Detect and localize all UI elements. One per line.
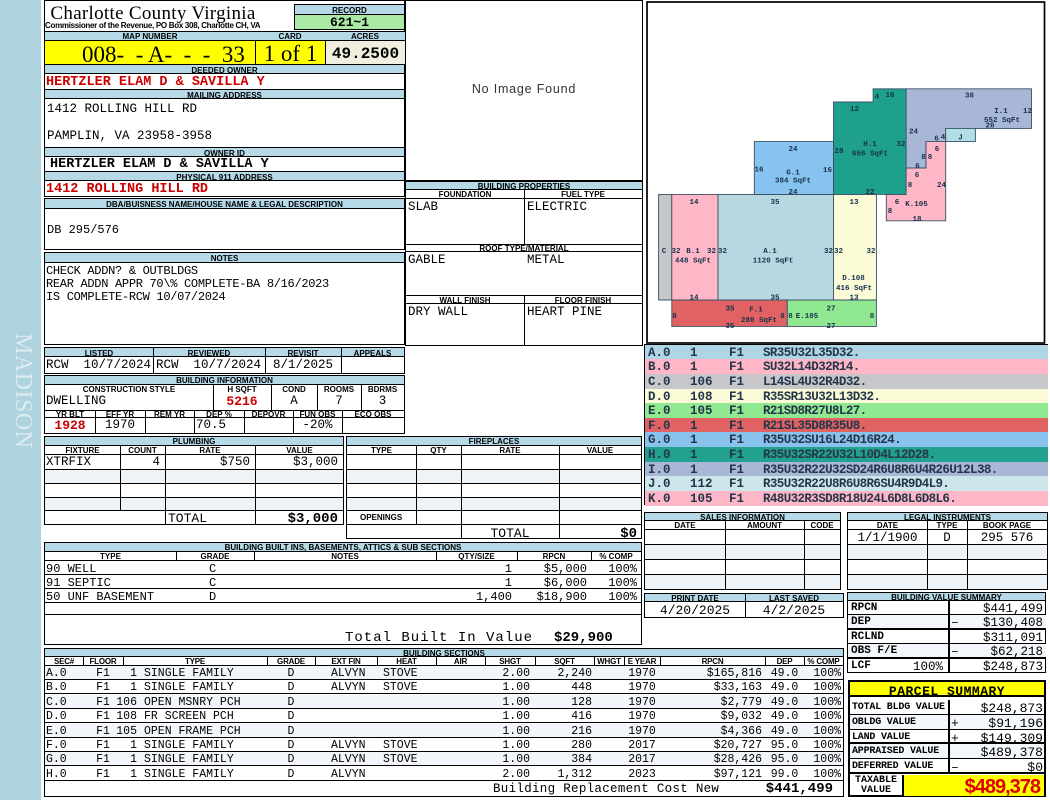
- svg-text:13: 13: [849, 295, 859, 303]
- svg-text:8: 8: [908, 182, 913, 190]
- svg-text:6: 6: [935, 146, 940, 154]
- svg-text:416 SqFt: 416 SqFt: [836, 285, 872, 293]
- svg-text:32: 32: [866, 248, 876, 256]
- svg-text:24: 24: [909, 129, 919, 137]
- svg-text:16: 16: [823, 167, 833, 175]
- svg-text:18: 18: [912, 216, 922, 224]
- svg-text:12: 12: [1023, 108, 1033, 116]
- svg-text:F.1: F.1: [749, 307, 763, 315]
- svg-text:35: 35: [770, 295, 780, 303]
- svg-text:35: 35: [770, 199, 780, 207]
- svg-text:6: 6: [934, 136, 939, 144]
- svg-text:H.1: H.1: [863, 141, 877, 149]
- svg-text:12: 12: [850, 106, 860, 114]
- svg-text:8: 8: [780, 313, 785, 321]
- svg-text:32: 32: [707, 248, 717, 256]
- svg-text:K.105: K.105: [905, 201, 928, 209]
- svg-text:27: 27: [826, 323, 835, 331]
- svg-text:24: 24: [937, 182, 947, 190]
- svg-text:16: 16: [754, 167, 764, 175]
- svg-text:G.1: G.1: [786, 170, 800, 178]
- svg-text:8: 8: [888, 208, 893, 216]
- svg-text:A.1: A.1: [763, 248, 777, 256]
- svg-text:8: 8: [870, 313, 875, 321]
- svg-text:14: 14: [689, 199, 699, 207]
- svg-text:4: 4: [941, 134, 946, 142]
- svg-text:J: J: [958, 135, 963, 143]
- svg-text:22: 22: [865, 189, 875, 197]
- svg-text:384 SqFt: 384 SqFt: [775, 178, 811, 186]
- svg-text:24: 24: [788, 146, 798, 154]
- svg-text:32: 32: [896, 141, 906, 149]
- svg-text:13: 13: [849, 199, 859, 207]
- svg-text:1120 SqFt: 1120 SqFt: [753, 258, 794, 266]
- svg-text:4: 4: [875, 94, 880, 102]
- svg-text:656 SqFt: 656 SqFt: [852, 151, 888, 159]
- svg-text:8: 8: [672, 313, 677, 321]
- svg-text:35: 35: [725, 306, 735, 314]
- svg-text:32: 32: [834, 248, 844, 256]
- svg-text:8: 8: [921, 154, 926, 162]
- svg-text:35: 35: [725, 323, 735, 331]
- svg-text:32: 32: [824, 248, 834, 256]
- svg-text:32: 32: [718, 248, 728, 256]
- svg-text:E.105: E.105: [796, 313, 819, 321]
- svg-text:8: 8: [928, 154, 933, 162]
- svg-text:24: 24: [788, 189, 798, 197]
- svg-text:B.1: B.1: [686, 248, 700, 256]
- svg-text:32: 32: [671, 248, 681, 256]
- svg-text:8: 8: [788, 313, 793, 321]
- svg-text:16: 16: [885, 92, 895, 100]
- svg-text:448 SqFt: 448 SqFt: [675, 258, 711, 266]
- svg-text:6: 6: [895, 199, 900, 207]
- svg-text:38: 38: [965, 93, 975, 101]
- svg-text:552 SqFt: 552 SqFt: [984, 117, 1020, 125]
- svg-text:280 SqFt: 280 SqFt: [741, 317, 777, 325]
- svg-text:27: 27: [826, 306, 835, 314]
- svg-text:14: 14: [689, 295, 699, 303]
- svg-text:D.108: D.108: [842, 275, 865, 283]
- svg-text:C: C: [662, 248, 667, 256]
- svg-text:6: 6: [915, 163, 920, 171]
- svg-text:I.1: I.1: [994, 108, 1008, 116]
- svg-text:6: 6: [915, 172, 920, 180]
- svg-text:28: 28: [834, 148, 844, 156]
